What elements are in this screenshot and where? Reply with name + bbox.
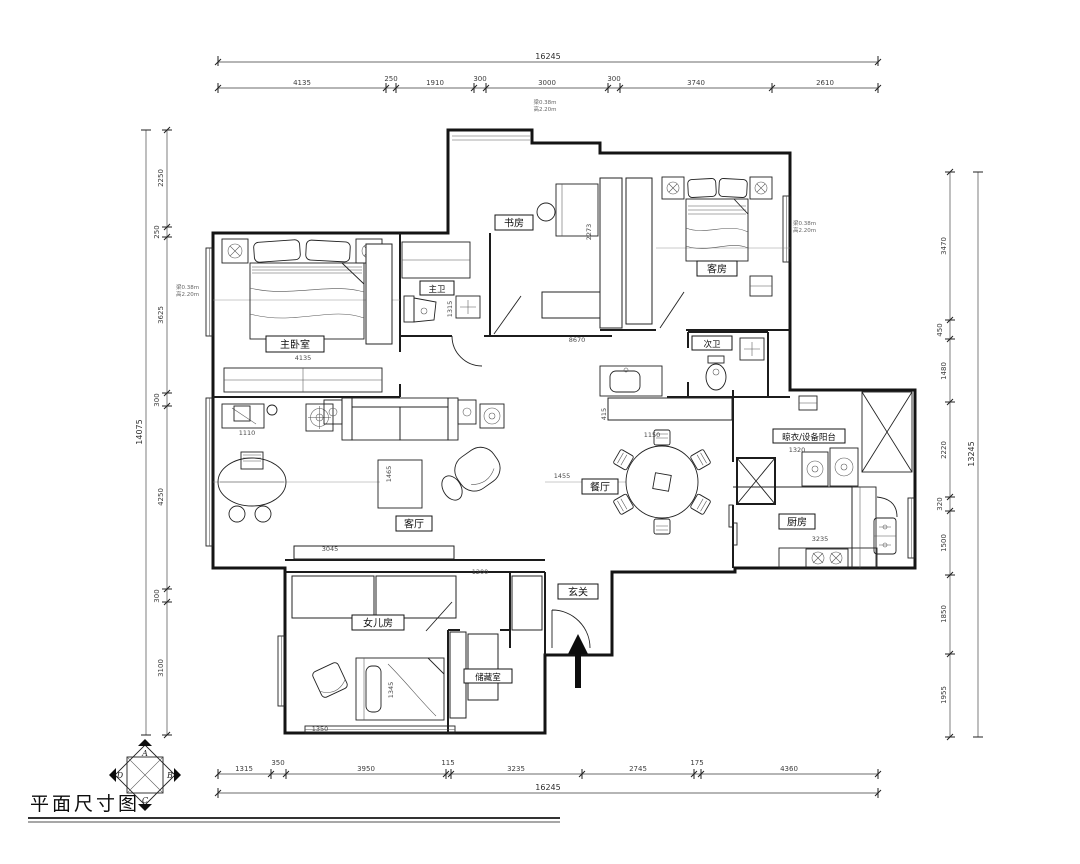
room-label-study: 书房 [495, 215, 533, 230]
dim-top-6: 3740 [687, 79, 705, 87]
dim-right-1: 450 [936, 323, 944, 336]
room-label-second-bath: 次卫 [692, 336, 732, 350]
dim-bottom: 1315 350 3950 115 3235 2745 175 4360 162… [215, 759, 881, 798]
hall-wardrobe-icon [600, 178, 652, 328]
dim-right: 3470 450 1480 2220 320 1500 1850 1955 13… [936, 169, 983, 740]
svg-text:餐厅: 餐厅 [590, 481, 610, 494]
dim-left-3: 300 [153, 393, 161, 406]
beam-note-top-1: 梁0.38m [533, 98, 556, 106]
svg-text:玄关: 玄关 [568, 586, 588, 599]
room-label-kitchen: 厨房 [779, 514, 815, 529]
dim-bottom-1: 350 [271, 759, 284, 767]
dim-top-total: 16245 [535, 52, 560, 61]
kitchen-sliding-door [729, 505, 737, 545]
idim-5: 1150 [644, 431, 661, 439]
beam-note-top-2: 高2.20m [533, 105, 556, 113]
dim-left-2: 3625 [157, 306, 165, 324]
sofa-icon [324, 398, 476, 440]
dim-top-3: 300 [473, 75, 486, 83]
idim-1: 1110 [239, 429, 256, 437]
dim-left: 2250 250 3625 300 4250 300 3100 14075 [135, 127, 172, 738]
idim-0: 4135 [295, 354, 312, 362]
dim-bottom-7: 4360 [780, 765, 798, 773]
dim-left-0: 2250 [157, 169, 165, 187]
dim-right-total: 13245 [967, 441, 976, 466]
idim-4: 1455 [554, 472, 571, 480]
daughter-furniture [292, 576, 456, 720]
room-label-guest-room: 客房 [697, 261, 737, 276]
room-label-master-bath: 主卫 [420, 281, 454, 295]
master-bed-icon [222, 239, 382, 392]
floor-plan-drawing: 主卧室 主卫 书房 客房 次卫 客厅 餐厅 厨房 晾衣/设备阳台 玄关 女儿房 … [0, 0, 1080, 864]
idim-12: 1315 [446, 301, 454, 318]
drawing-title: 平面尺寸图 [30, 793, 140, 815]
idim-7: 3235 [812, 535, 829, 543]
dim-right-6: 1850 [940, 605, 948, 623]
compass-letter-left: D [116, 771, 124, 780]
svg-text:客房: 客房 [707, 263, 727, 276]
svg-text:主卧室: 主卧室 [280, 338, 310, 351]
ceiling-lamp-icon [306, 404, 333, 431]
room-label-master-bedroom: 主卧室 [266, 336, 324, 352]
master-bath-fixtures [402, 242, 482, 366]
svg-text:厨房: 厨房 [787, 516, 807, 529]
master-wardrobe-icon [366, 244, 392, 344]
ceiling-lamp-icon-2 [480, 404, 504, 428]
idim-6: 1320 [789, 446, 806, 454]
idim-10: 1345 [387, 682, 395, 699]
idim-8: 1200 [472, 568, 489, 576]
dim-right-5: 1500 [940, 534, 948, 552]
svg-text:次卫: 次卫 [703, 339, 721, 350]
dim-left-5: 300 [153, 589, 161, 602]
axis-lines [213, 248, 790, 482]
dim-right-2: 1480 [940, 362, 948, 380]
svg-text:客厅: 客厅 [404, 518, 424, 531]
elevator-icon [737, 458, 775, 504]
dim-top-4: 3000 [538, 79, 556, 87]
dim-right-4: 320 [936, 497, 944, 510]
dim-top-2: 1910 [426, 79, 444, 87]
svg-text:书房: 书房 [504, 217, 524, 230]
dim-bottom-3: 115 [441, 759, 454, 767]
dim-top-5: 300 [607, 75, 620, 83]
hall-basin-icon [600, 366, 662, 396]
idim-13: 415 [600, 408, 608, 420]
tv-cabinet-icon [294, 546, 454, 559]
dim-bottom-4: 3235 [507, 765, 525, 773]
dim-bottom-total: 16245 [535, 783, 560, 792]
dim-bottom-5: 2745 [629, 765, 647, 773]
window-study-bay [452, 136, 530, 140]
study-furniture [494, 184, 600, 334]
dining-furniture [608, 398, 732, 534]
svg-text:主卫: 主卫 [428, 284, 446, 295]
dim-bottom-2: 3950 [357, 765, 375, 773]
room-label-living-room: 客厅 [396, 516, 432, 531]
beam-note-right-1: 梁0.38m [793, 219, 816, 227]
living-furniture [218, 398, 506, 559]
idim-3: 2273 [585, 224, 593, 241]
stove-icon [806, 549, 848, 568]
room-label-dining-room: 餐厅 [582, 479, 618, 494]
entry-arrow [568, 634, 588, 688]
guest-bed-icon [660, 177, 772, 328]
dim-left-total: 14075 [135, 419, 144, 444]
beam-note-right-2: 高2.20m [793, 226, 816, 234]
dim-right-0: 3470 [940, 237, 948, 255]
single-bed-icon [356, 658, 444, 720]
dim-top-1: 250 [384, 75, 397, 83]
dim-bottom-0: 1315 [235, 765, 253, 773]
room-label-laundry-balcony: 晾衣/设备阳台 [773, 429, 845, 443]
room-label-daughter-room: 女儿房 [352, 615, 404, 630]
room-label-storage: 储藏室 [464, 669, 512, 683]
dim-top-0: 4135 [293, 79, 311, 87]
floor-plan-page: 主卧室 主卫 书房 客房 次卫 客厅 餐厅 厨房 晾衣/设备阳台 玄关 女儿房 … [0, 0, 1080, 864]
dim-right-3: 2220 [940, 441, 948, 459]
beam-note-left-2: 高2.20m [176, 290, 199, 298]
idim-14: 1465 [385, 466, 393, 483]
stair-shaft-icon [862, 392, 912, 472]
idim-11: 1350 [312, 725, 329, 733]
compass-letter-right: B [166, 771, 173, 780]
interior-walls [213, 233, 852, 733]
dim-left-1: 250 [153, 225, 161, 238]
dining-table-icon [613, 430, 711, 534]
svg-text:女儿房: 女儿房 [363, 617, 393, 630]
round-table-icon [218, 452, 286, 522]
dim-top-7: 2610 [816, 79, 834, 87]
svg-text:晾衣/设备阳台: 晾衣/设备阳台 [782, 432, 836, 443]
dim-top: 16245 4135 250 1910 300 3000 300 3740 26… [215, 52, 881, 93]
dim-left-6: 3100 [157, 659, 165, 677]
idim-2: 8670 [569, 336, 586, 344]
corner-shelf-icon [877, 497, 897, 517]
compass-letter-bottom: C [142, 796, 148, 805]
dim-bottom-6: 175 [690, 759, 703, 767]
room-label-entry: 玄关 [558, 584, 598, 599]
drawing-title-block: 平面尺寸图 [28, 793, 560, 822]
beam-note-left-1: 梁0.38m [176, 283, 199, 291]
dim-left-4: 4250 [157, 488, 165, 506]
svg-text:储藏室: 储藏室 [475, 672, 501, 683]
compass-letter-top: A [141, 749, 148, 758]
idim-9: 3045 [322, 545, 339, 553]
small-chair-icon [311, 661, 348, 698]
armchair-icon [438, 441, 507, 504]
dim-right-7: 1955 [940, 686, 948, 704]
